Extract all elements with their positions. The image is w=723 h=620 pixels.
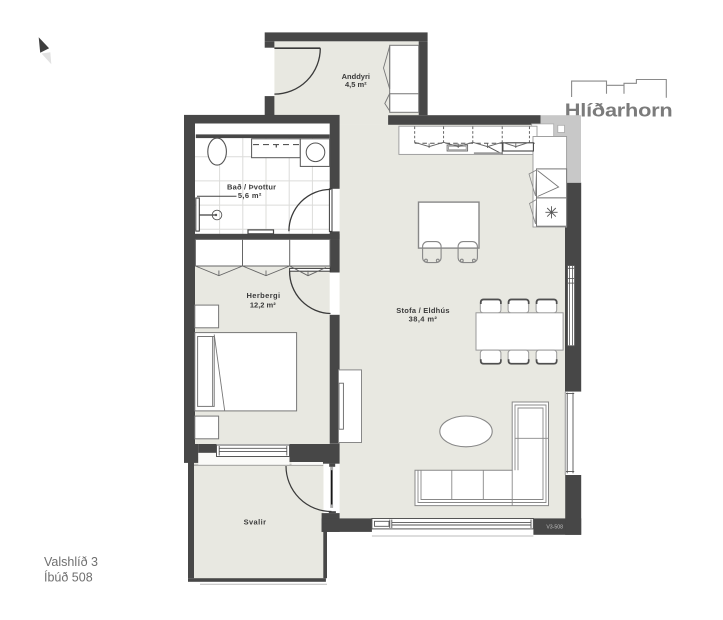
svg-text:V3-508: V3-508	[546, 524, 563, 530]
svg-text:4,5 m²: 4,5 m²	[345, 80, 367, 89]
svg-text:Valshlíð 3: Valshlíð 3	[44, 555, 98, 569]
svg-text:12,2 m²: 12,2 m²	[250, 301, 276, 310]
svg-text:Stofa / Eldhús: Stofa / Eldhús	[396, 306, 450, 315]
svg-text:38,4 m²: 38,4 m²	[409, 315, 438, 324]
svg-text:5,6 m²: 5,6 m²	[238, 191, 262, 200]
svg-text:Svalir: Svalir	[244, 518, 267, 527]
svg-text:Herbergi: Herbergi	[246, 291, 280, 300]
svg-text:Íbúð 508: Íbúð 508	[44, 570, 93, 585]
